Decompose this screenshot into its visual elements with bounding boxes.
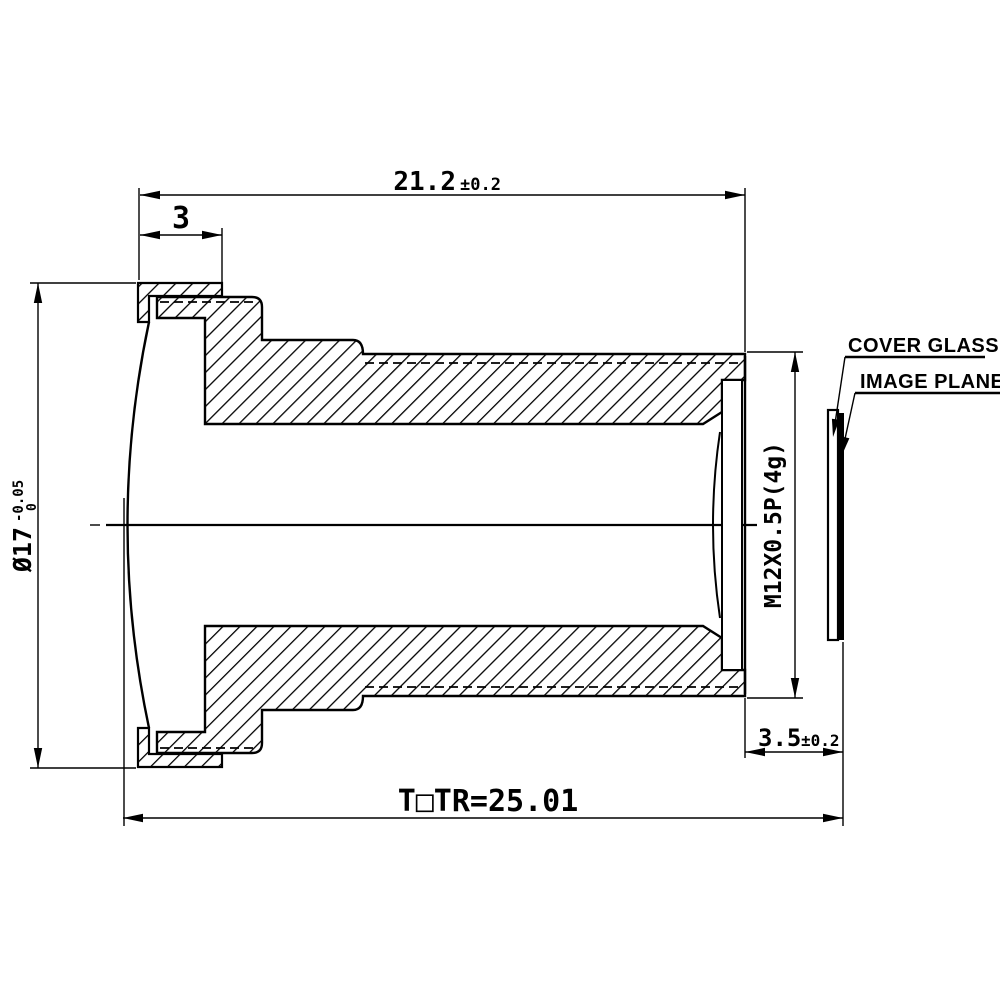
- dim-tolerance-lower: 0: [25, 503, 40, 511]
- cover-glass: [828, 410, 838, 640]
- dim-back-distance: 3.5 ±0.2: [745, 642, 843, 826]
- image-plane-label: IMAGE PLANE: [860, 371, 1000, 393]
- arrowhead-icon: [140, 191, 160, 199]
- dim-tolerance-upper: -0.05: [11, 480, 27, 522]
- arrowhead-icon: [823, 814, 843, 822]
- dim-front-section: 3: [140, 201, 222, 282]
- cover-glass-label: COVER GLASS: [848, 335, 999, 357]
- dim-label-rotated: Ø17 -0.05 0: [8, 480, 40, 573]
- dim-value: 21.2: [393, 167, 456, 197]
- dim-value: 3.5: [758, 724, 801, 752]
- lens-body: [90, 283, 757, 767]
- arrowhead-icon: [34, 748, 42, 768]
- barrel-wall-upper: [157, 297, 745, 424]
- arrowhead-icon: [34, 283, 42, 303]
- dim-label-rotated: M12X0.5P(4g): [761, 442, 787, 608]
- rear-lens-element: [722, 380, 742, 670]
- sensor-side: COVER GLASS IMAGE PLANE: [828, 335, 1000, 640]
- arrowhead-icon: [202, 231, 222, 239]
- dim-value: M12X0.5P(4g): [761, 442, 787, 608]
- arrowhead-icon: [123, 814, 143, 822]
- barrel-wall-lower: [157, 626, 745, 753]
- arrowhead-icon: [791, 352, 799, 372]
- arrowhead-icon: [791, 678, 799, 698]
- image-plane-leader-arrow-icon: [842, 437, 849, 455]
- arrowhead-icon: [725, 191, 745, 199]
- drawing-page: COVER GLASS IMAGE PLANE 21.2 ±0.2 3 Ø17: [0, 0, 1000, 1000]
- dim-tolerance: ±0.2: [460, 175, 501, 195]
- dim-value: 3: [172, 201, 190, 236]
- lens-cross-section-drawing: COVER GLASS IMAGE PLANE 21.2 ±0.2 3 Ø17: [0, 0, 1000, 1000]
- arrowhead-icon: [140, 231, 160, 239]
- dim-tolerance: ±0.2: [801, 731, 840, 750]
- dim-value: T□TR=25.01: [398, 784, 579, 819]
- dim-value: Ø17: [8, 527, 37, 573]
